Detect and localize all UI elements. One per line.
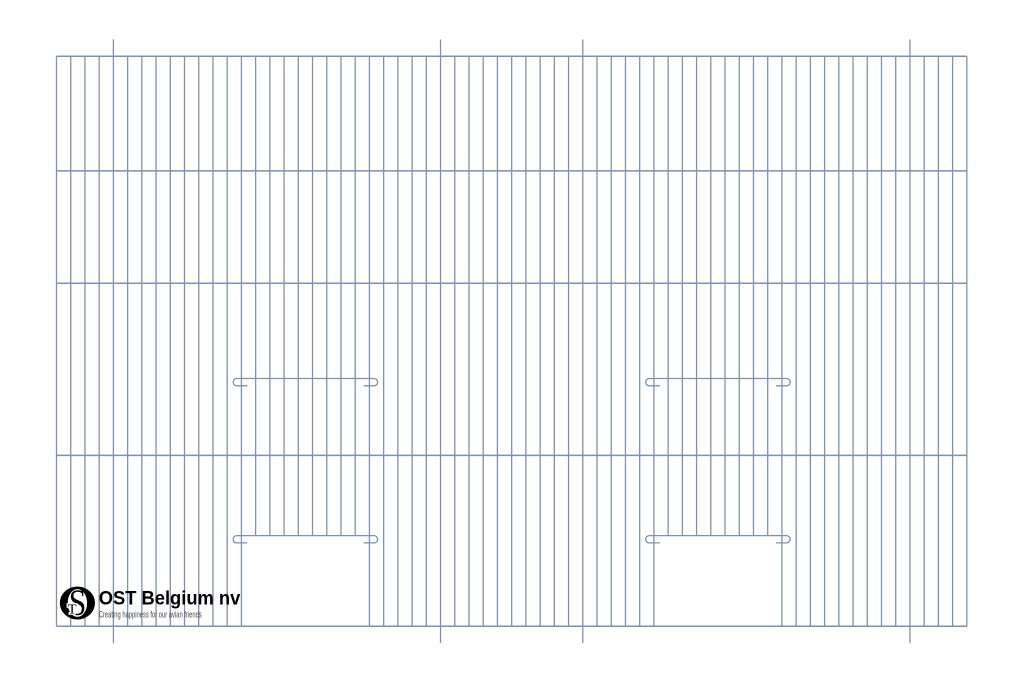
svg-text:OST Belgium nv: OST Belgium nv <box>99 588 241 610</box>
svg-text:T: T <box>68 602 78 617</box>
svg-text:Creating happiness for our avi: Creating happiness for our avian friends <box>99 610 202 620</box>
